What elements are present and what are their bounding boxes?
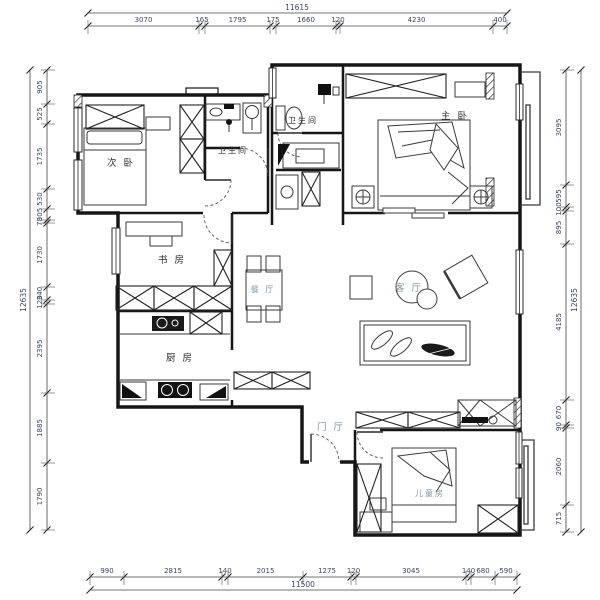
cabinet-x: [408, 412, 460, 428]
room-label-bathroom-2: 卫生间: [288, 115, 318, 125]
room-label-living-room: 客 厅: [395, 282, 423, 294]
entry-door-swing: [311, 434, 339, 462]
dim-bottom-segment: 140: [462, 567, 475, 575]
master-bed: [378, 120, 470, 210]
dim-right-segment: 895: [555, 221, 563, 234]
master-bay-glazing: [526, 105, 530, 199]
cabinet-x: [194, 286, 232, 310]
room-label-master-bedroom: 主 卧: [441, 110, 469, 122]
dim-bottom-segment: 1275: [318, 567, 336, 575]
cabinet-x: [180, 139, 204, 173]
dim-top-segment: 165: [195, 16, 208, 24]
dim-bottom-segment: 120: [347, 567, 360, 575]
cabinet-x: [356, 412, 408, 428]
bedroom2-door-swing: [205, 180, 231, 206]
dim-right-segment: 715: [555, 512, 563, 525]
cabinet-x: [180, 105, 204, 139]
dim-bottom-segment: 990: [100, 567, 113, 575]
dim-bottom-segment: 680: [476, 567, 489, 575]
dim-bottom-segment: 3045: [402, 567, 420, 575]
pier-hatch: [74, 95, 82, 107]
dim-right-segment: 670: [555, 406, 563, 419]
dim-left-segment: 1730: [36, 246, 44, 264]
dim-right-segment: 90: [555, 422, 563, 431]
cabinet-x: [86, 105, 144, 129]
armchair: [444, 255, 488, 299]
dimension-top: 307016517951751660120423040011615: [85, 3, 511, 34]
dim-left-segment: 120: [36, 295, 44, 308]
dim-top-segment: 175: [266, 16, 279, 24]
cabinet-x: [190, 312, 222, 334]
dim-top-segment: 1660: [297, 16, 315, 24]
dim-right-segment: 100: [555, 202, 563, 215]
room-label-kids-room: 儿童房: [415, 488, 445, 498]
dim-bottom-segment: 2815: [164, 567, 182, 575]
room-label-dining-room: 餐 厅: [251, 285, 276, 294]
bath1-sink: [206, 104, 240, 132]
kids-bay-glazing: [524, 446, 528, 524]
dim-left-segment: 2395: [36, 340, 44, 358]
dim-top-segment: 400: [493, 16, 506, 24]
dim-right-segment: 595: [555, 189, 563, 202]
room-label-kitchen: 厨 房: [166, 352, 194, 364]
dim-bottom-segment: 140: [218, 567, 231, 575]
room-label-study: 书 房: [158, 254, 186, 266]
dim-left-segment: 530: [36, 192, 44, 205]
dim-left-segment: 905: [36, 80, 44, 93]
dim-bottom-segment: 2015: [257, 567, 275, 575]
cabinet-x: [234, 372, 272, 389]
kitchen-sink: [152, 316, 184, 331]
cabinet-x: [214, 250, 232, 286]
dim-left-total: 12635: [19, 288, 28, 312]
master-dresser: [455, 82, 485, 97]
room-label-bathroom-1: 卫生间: [218, 145, 248, 155]
kids-desk: [360, 498, 392, 532]
dim-top-segment: 4230: [408, 16, 426, 24]
washing-machine: [276, 175, 298, 209]
dim-left-segment: 525: [36, 107, 44, 120]
floorplan-canvas: 307016517951751660120423040011615 990281…: [0, 0, 600, 600]
bath1-water-heater: [243, 103, 261, 133]
dim-right-segment: 3095: [555, 119, 563, 137]
dim-top-segment: 1795: [229, 16, 247, 24]
cabinet-x: [478, 505, 518, 533]
shoe-cabinet-appliance: [458, 400, 516, 426]
entry-opening: [309, 458, 340, 466]
kids-bed: [392, 448, 456, 522]
dim-right-segment: 4185: [555, 313, 563, 331]
dim-left-segment: 1885: [36, 419, 44, 437]
dim-top-total: 11615: [285, 3, 309, 12]
pier-hatch: [514, 398, 521, 428]
room-label-secondary-bedroom: 次 卧: [107, 157, 135, 169]
dim-left-segment: 1790: [36, 488, 44, 506]
dimension-right: 3095595100895418567090206071512635: [555, 67, 585, 536]
secondary-dresser: [146, 117, 170, 130]
dim-left-segment: 70: [36, 217, 44, 226]
dim-left-segment: 1735: [36, 148, 44, 166]
pier-hatch: [486, 178, 494, 206]
cabinet-x: [302, 172, 320, 206]
dim-bottom-segment: 590: [499, 567, 512, 575]
dim-top-segment: 120: [331, 16, 344, 24]
stool: [350, 276, 372, 299]
dim-right-total: 12635: [570, 288, 579, 312]
cabinet-x: [154, 286, 194, 310]
dimension-bottom: 990281514020151275120304514068059011500: [87, 567, 521, 594]
study-desk: [126, 222, 182, 246]
kitchen-corner-unit-right: [200, 384, 228, 400]
wall-piers: [74, 73, 521, 428]
study-door-swing: [204, 215, 232, 243]
bath2-shower-head: [318, 84, 339, 104]
cabinet-x: [272, 372, 310, 389]
sofa: [360, 321, 470, 365]
room-label-foyer: 门 厅: [317, 421, 345, 433]
dim-top-segment: 3070: [135, 16, 153, 24]
dim-bottom-total: 11500: [291, 580, 315, 589]
stove: [158, 382, 192, 398]
kids-door-swing: [357, 432, 383, 458]
dim-right-segment: 2060: [555, 458, 563, 476]
kitchen-corner-unit-left: [120, 382, 146, 400]
nightstand-left: [352, 186, 374, 208]
dimension-left: 9055251735530305701730340120239518851790…: [19, 67, 55, 534]
pier-hatch: [486, 73, 494, 99]
cabinet-x: [346, 74, 446, 98]
cabinet-x: [116, 286, 154, 310]
floorplan-svg: 307016517951751660120423040011615 990281…: [0, 0, 600, 600]
bath2-vanity: [278, 143, 339, 168]
